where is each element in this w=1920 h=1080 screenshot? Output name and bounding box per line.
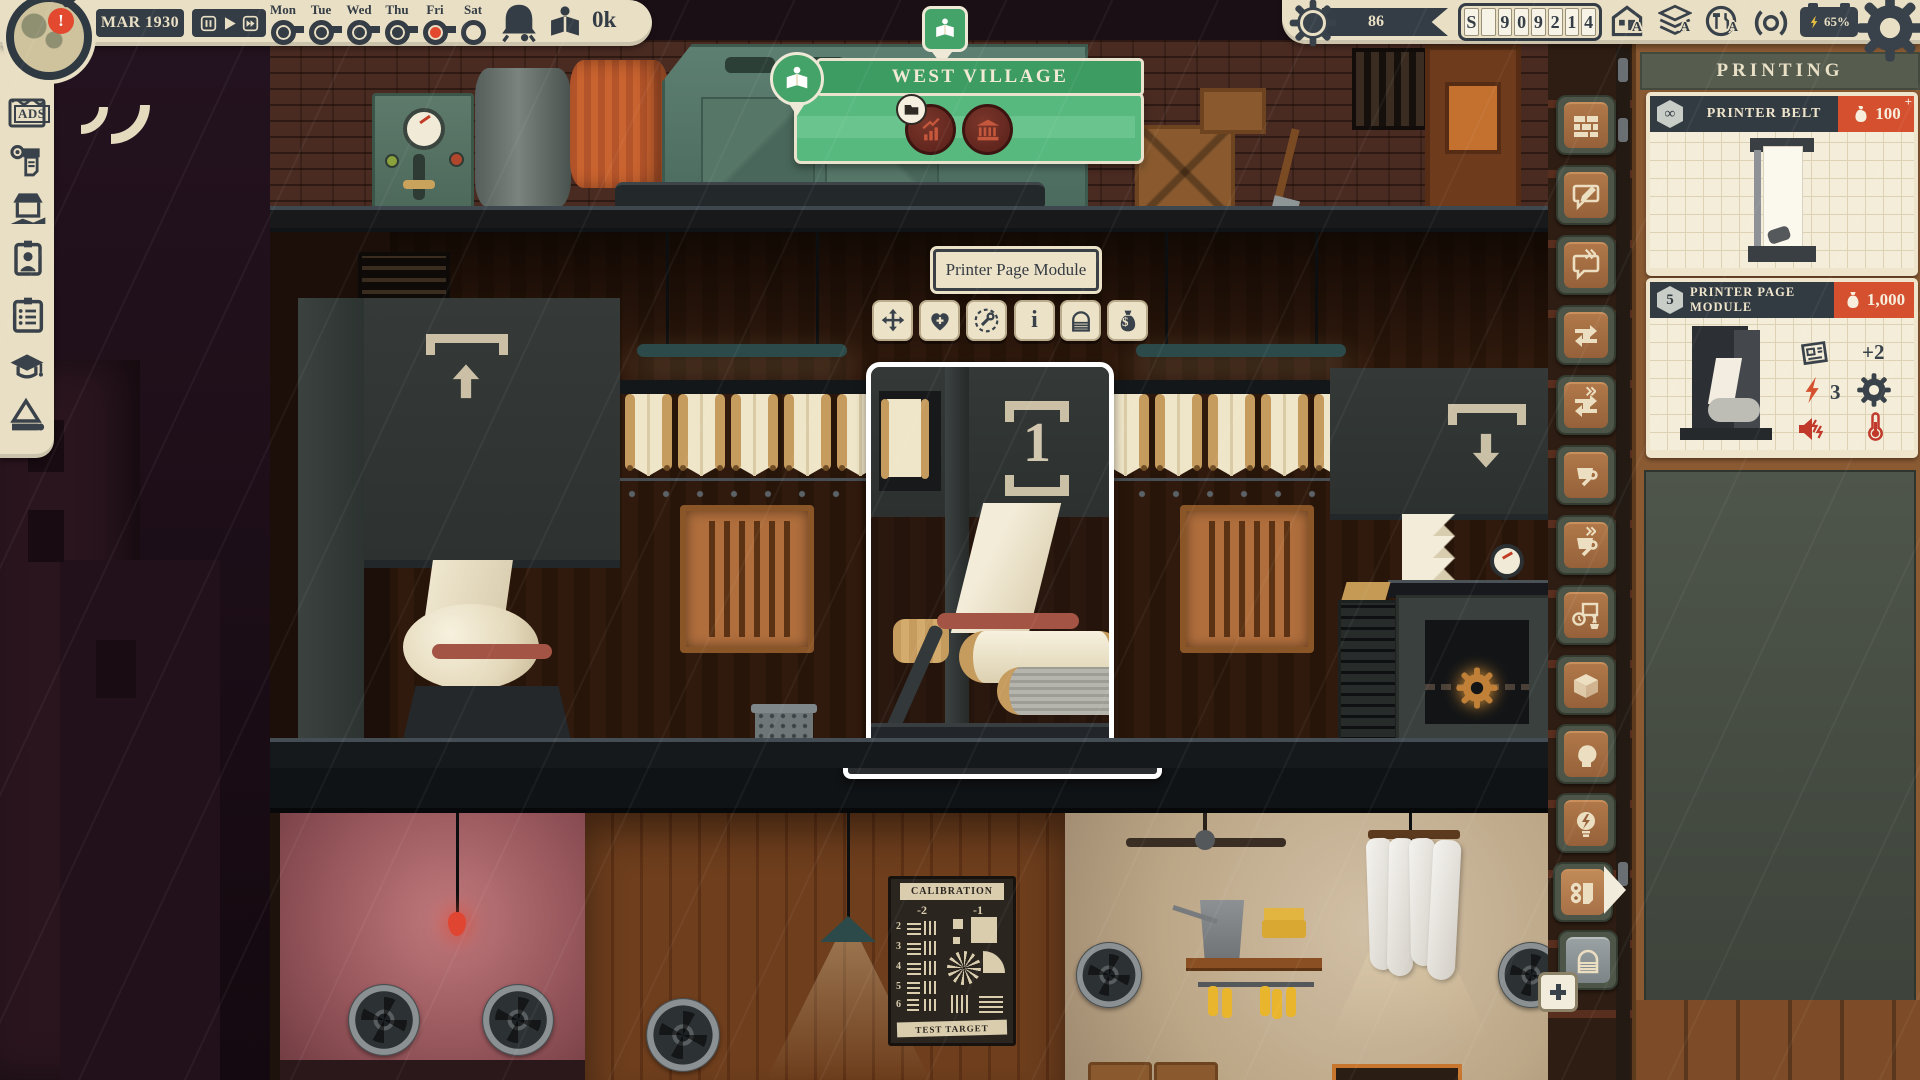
tool-maintenance[interactable] — [1556, 445, 1616, 505]
action-store-button[interactable] — [1060, 300, 1101, 341]
wooden-crate-small — [1200, 88, 1266, 134]
day-label: Wed — [340, 2, 378, 18]
day-fri[interactable]: Fri — [416, 2, 454, 45]
shop-item-printer-belt[interactable]: ∞ PRINTER BELT $ 100 + — [1646, 92, 1918, 276]
noise-stat-icon — [1796, 414, 1826, 444]
shop-item-printer-page-module[interactable]: 5 PRINTER PAGE MODULE $ 1,000 +2 3 — [1646, 278, 1918, 458]
sidebar-item-training[interactable] — [6, 348, 48, 386]
day-label: Mon — [264, 2, 302, 18]
dryer-oven — [1396, 595, 1561, 751]
tool-print-run-auto[interactable] — [1556, 375, 1616, 435]
window-page — [887, 399, 921, 477]
counter-cell: 1 — [1565, 8, 1580, 36]
signal-arcs — [66, 60, 138, 132]
wall-fan — [646, 998, 720, 1072]
reputation-gear-ring — [1300, 10, 1326, 36]
module-roll — [1708, 398, 1760, 422]
belt-side — [1754, 150, 1761, 250]
shop-panel-title: PRINTING — [1716, 60, 1843, 82]
day-connector — [293, 26, 463, 33]
wood-slat-panel — [680, 505, 814, 653]
counter-cell: 9 — [1531, 8, 1546, 36]
poster-footer-plate: TEST TARGET — [897, 1020, 1007, 1038]
up-arrow-marker — [444, 360, 488, 404]
game-stage: CALIBRATION -2 -1 2 3 4 5 6 TEST TARGET — [0, 0, 1920, 1080]
lamp-cord — [847, 800, 850, 918]
date-text: MAR 1930 — [101, 14, 179, 32]
pages-stat-icon — [1796, 334, 1834, 372]
orange-paper-roll — [570, 60, 668, 188]
col-label: -2 — [917, 903, 927, 918]
notification-mark: ! — [58, 11, 64, 31]
wooden-crate — [1135, 125, 1235, 219]
test-pattern — [907, 941, 921, 955]
readers-count: 0k — [592, 7, 616, 33]
oven-window — [1425, 620, 1529, 724]
folder-icon — [903, 101, 920, 118]
test-pattern — [907, 999, 919, 1011]
printer-page-module-machine[interactable]: 1 — [866, 362, 1114, 760]
test-pattern — [951, 995, 971, 1013]
lever-slot[interactable] — [413, 154, 425, 200]
calibration-poster[interactable]: CALIBRATION -2 -1 2 3 4 5 6 TEST TARGET — [888, 876, 1016, 1046]
trash-bin-rim — [751, 704, 817, 713]
machine-frame-post — [945, 367, 969, 755]
test-pattern — [924, 941, 938, 955]
roll-stand — [402, 686, 572, 744]
tool-decorations[interactable] — [1556, 585, 1616, 645]
selected-tool-arrow — [1604, 866, 1626, 914]
test-pattern — [907, 981, 920, 994]
paper-badge: A — [1680, 20, 1690, 36]
district-coin-civic[interactable] — [962, 104, 1013, 155]
sidebar-item-press[interactable] — [8, 142, 46, 180]
play-button[interactable] — [221, 15, 238, 32]
item-price-tag[interactable]: $ 100 + — [1838, 96, 1914, 132]
pause-button[interactable] — [200, 15, 217, 32]
price-plus: + — [1905, 94, 1912, 110]
module-base — [1680, 428, 1772, 440]
machine-vent — [725, 57, 775, 73]
test-dot — [953, 937, 960, 944]
reader-icon — [783, 65, 811, 93]
scroll-handle[interactable] — [1618, 118, 1628, 142]
paper-chute — [1341, 582, 1390, 600]
bucket — [1198, 900, 1246, 960]
roll-axle-bar — [432, 644, 552, 659]
machine-number-marker: 1 — [1005, 411, 1069, 475]
location-pin[interactable] — [770, 52, 824, 106]
belt-base — [1748, 246, 1816, 262]
machine-body — [1330, 368, 1555, 520]
room-floor — [280, 1060, 585, 1080]
pink-room — [280, 802, 585, 1080]
day-dot-5[interactable] — [461, 20, 486, 45]
wood-slat-panel — [1180, 505, 1314, 653]
lever-handle[interactable] — [403, 180, 435, 189]
plus-icon-v — [1556, 984, 1561, 1000]
power-stat-icon — [1800, 376, 1828, 404]
battery-indicator[interactable]: 65% — [1800, 7, 1858, 37]
currency-symbol: $ — [1122, 314, 1129, 330]
home-badge: A — [1632, 20, 1642, 36]
panel-planks — [1636, 1000, 1920, 1080]
services-badge: A — [1728, 20, 1738, 36]
panel-board — [1644, 470, 1916, 1002]
poster-title: CALIBRATION — [911, 886, 993, 897]
add-tool-button[interactable] — [1538, 972, 1578, 1012]
currency-symbol: $ — [1862, 103, 1867, 114]
sales-counter: S 9 0 9 2 1 4 — [1458, 3, 1602, 41]
tool-maintenance-auto[interactable] — [1556, 515, 1616, 575]
item-price: 1,000 — [1867, 290, 1905, 310]
sponges — [1262, 920, 1306, 938]
sidebar-item-tasks[interactable] — [8, 293, 48, 337]
paper-feeder-machine[interactable] — [298, 298, 648, 758]
glowing-gear-icon — [1455, 666, 1499, 710]
locker-cabinet — [1338, 600, 1398, 751]
gauge — [403, 108, 445, 150]
row-label: 5 — [896, 981, 901, 992]
test-pattern — [924, 961, 938, 975]
door-window — [1445, 82, 1501, 154]
tool-write-article[interactable] — [1556, 165, 1616, 225]
red-bulb — [448, 912, 466, 936]
paper-output-machine[interactable] — [1330, 368, 1555, 764]
test-square — [971, 917, 997, 943]
battery-terminal — [1808, 3, 1818, 8]
test-square — [953, 919, 963, 929]
grated-window — [1352, 48, 1428, 130]
shelf-board — [1186, 958, 1322, 971]
building-silhouette — [60, 560, 220, 1080]
day-wed[interactable]: Wed — [340, 2, 378, 45]
pressure-gauge — [1490, 544, 1524, 578]
stock-count: ∞ — [1657, 100, 1683, 128]
counter-cell: 2 — [1548, 8, 1563, 36]
stock-badge: 5 — [1650, 282, 1690, 318]
lamp-bar — [637, 344, 847, 357]
sidebar-item-newsstand[interactable] — [8, 188, 48, 228]
grey-roller — [475, 68, 571, 208]
info-glyph: i — [1031, 307, 1038, 334]
sidebar-item-ads[interactable]: ADS — [8, 96, 48, 134]
day-thu[interactable]: Thu — [378, 2, 416, 45]
test-pattern — [924, 999, 936, 1011]
action-repair-button[interactable] — [919, 300, 960, 341]
printed-roll — [997, 667, 1114, 715]
row-label: 4 — [896, 961, 901, 972]
ceiling-fan-hub — [1195, 830, 1215, 850]
power-bolt-icon — [1808, 15, 1822, 29]
battery-terminal — [1840, 3, 1850, 8]
wooden-door[interactable] — [1425, 45, 1521, 220]
indicator-green — [385, 154, 399, 168]
day-label: Thu — [378, 2, 416, 18]
factory-bottom-floor: CALIBRATION -2 -1 2 3 4 5 6 TEST TARGET — [270, 800, 1555, 1080]
lamp-cord — [1165, 232, 1168, 348]
selection-tooltip: Printer Page Module — [933, 249, 1099, 291]
paper-stock-button[interactable]: A — [1658, 4, 1698, 44]
tool-storage-box[interactable] — [1556, 655, 1616, 715]
reputation-ribbon: 86 — [1322, 8, 1448, 36]
day-dot-0[interactable] — [271, 20, 296, 45]
item-preview: +2 3 — [1650, 318, 1914, 450]
power-stat-value: 3 — [1830, 380, 1841, 405]
pin-tail — [788, 102, 806, 116]
control-cabinet[interactable] — [372, 93, 474, 217]
tool-print-run[interactable] — [1556, 305, 1616, 365]
building-window — [28, 510, 64, 562]
day-label: Tue — [302, 2, 340, 18]
machine-window — [879, 391, 941, 491]
location-title: WEST VILLAGE — [892, 66, 1069, 88]
fast-forward-button[interactable] — [242, 15, 259, 32]
wall-fan — [1076, 942, 1142, 1008]
gear-stat-icon — [1856, 372, 1892, 408]
date-display: MAR 1930 — [96, 9, 184, 37]
test-pattern — [924, 921, 938, 935]
lamp-cord — [1315, 232, 1318, 348]
down-arrow-marker — [1464, 428, 1508, 472]
item-preview — [1650, 132, 1914, 268]
folded-paper-stack — [1402, 514, 1488, 580]
counter-cell: 0 — [1514, 8, 1529, 36]
counter-cell — [1481, 8, 1496, 36]
item-price: 100 — [1875, 104, 1901, 124]
input-bracket — [426, 334, 508, 355]
stock-badge: ∞ — [1650, 96, 1690, 132]
tool-staff[interactable] — [1556, 724, 1616, 784]
indicator-red — [449, 152, 464, 167]
framed-picture — [1332, 1064, 1462, 1080]
tool-write-article-auto[interactable] — [1556, 235, 1616, 295]
bell-icon[interactable] — [498, 2, 540, 44]
bulb-cord — [456, 802, 459, 914]
sidebar-item-staff-card[interactable] — [8, 236, 48, 280]
counter-cell: 4 — [1581, 8, 1596, 36]
col-label: -1 — [973, 903, 983, 918]
heat-stat-icon — [1860, 412, 1890, 442]
day-label: Sat — [454, 2, 492, 18]
counter-cell: S — [1464, 8, 1479, 36]
window-roller — [921, 399, 929, 479]
item-price-tag[interactable]: $ 1,000 — [1834, 282, 1914, 318]
quarter-shape — [983, 951, 1005, 973]
day-tue[interactable]: Tue — [302, 2, 340, 45]
test-pattern — [924, 981, 937, 994]
action-info-button[interactable]: i — [1014, 300, 1055, 341]
visibility-eye-icon[interactable] — [1752, 6, 1790, 40]
tooltip-text: Printer Page Module — [946, 260, 1087, 280]
notification-badge[interactable]: ! — [48, 8, 74, 34]
poster-title-plate: CALIBRATION — [900, 883, 1004, 900]
reputation-value: 86 — [1368, 13, 1384, 31]
window-roller — [881, 399, 889, 479]
panel-scroll-track[interactable] — [1616, 48, 1630, 1080]
counter-cell: 9 — [1498, 8, 1513, 36]
mid-floor-ground — [270, 738, 1555, 768]
day-sat[interactable]: Sat — [454, 2, 492, 45]
action-move-button[interactable] — [872, 300, 913, 341]
battery-value: 65% — [1824, 14, 1850, 30]
ads-label: ADS — [14, 105, 50, 123]
marker-bracket-bottom — [1005, 475, 1069, 496]
shop-panel: PRINTING ∞ PRINTER BELT $ 100 + — [1632, 0, 1920, 1080]
gloves — [1208, 986, 1218, 1016]
suitcase — [1154, 1062, 1218, 1080]
building-window — [96, 640, 136, 698]
action-maintenance-button[interactable] — [966, 300, 1007, 341]
machine-column — [298, 298, 364, 744]
home-district-button[interactable]: A — [1610, 4, 1650, 44]
lamp-cord — [816, 232, 819, 348]
tool-build-walls[interactable] — [1556, 95, 1616, 155]
row-label: 2 — [896, 921, 901, 932]
row-label: 3 — [896, 941, 901, 952]
row-label: 6 — [896, 999, 901, 1010]
services-button[interactable]: A — [1704, 4, 1744, 44]
starburst — [947, 951, 981, 985]
test-pattern — [979, 995, 1003, 1013]
scroll-handle[interactable] — [1618, 58, 1628, 82]
day-mon[interactable]: Mon — [264, 2, 302, 45]
folder-badge[interactable] — [896, 94, 927, 125]
pages-stat-value: +2 — [1862, 340, 1884, 365]
wall-fan — [348, 984, 420, 1056]
stock-count: 5 — [1657, 286, 1683, 314]
poster-footer: TEST TARGET — [915, 1023, 989, 1035]
bank-icon — [975, 117, 1001, 143]
lamp-cord — [666, 232, 669, 348]
suitcase — [1088, 1062, 1152, 1080]
settings-gear-button[interactable] — [1854, 0, 1920, 64]
lamp-bar — [1136, 344, 1346, 357]
action-sell-button[interactable]: $ — [1107, 300, 1148, 341]
output-bracket — [1448, 404, 1526, 425]
test-pattern — [907, 961, 921, 975]
reader-icon — [933, 17, 957, 41]
location-banner: WEST VILLAGE — [770, 52, 1145, 164]
playback-controls — [192, 9, 266, 37]
day-label: Fri — [416, 2, 454, 18]
banner-title-bar: WEST VILLAGE — [816, 58, 1144, 96]
item-title: PRINTER PAGE MODULE — [1690, 282, 1834, 318]
wall-fan — [482, 984, 554, 1056]
tool-power[interactable] — [1556, 793, 1616, 853]
currency-symbol: $ — [1860, 289, 1865, 300]
district-map-button[interactable] — [922, 6, 968, 52]
item-title: PRINTER BELT — [1690, 96, 1838, 132]
roller-bar — [937, 613, 1079, 629]
reader-stat-icon[interactable] — [546, 4, 584, 42]
sidebar-item-blueprints[interactable] — [8, 392, 48, 434]
test-pattern — [907, 921, 921, 935]
